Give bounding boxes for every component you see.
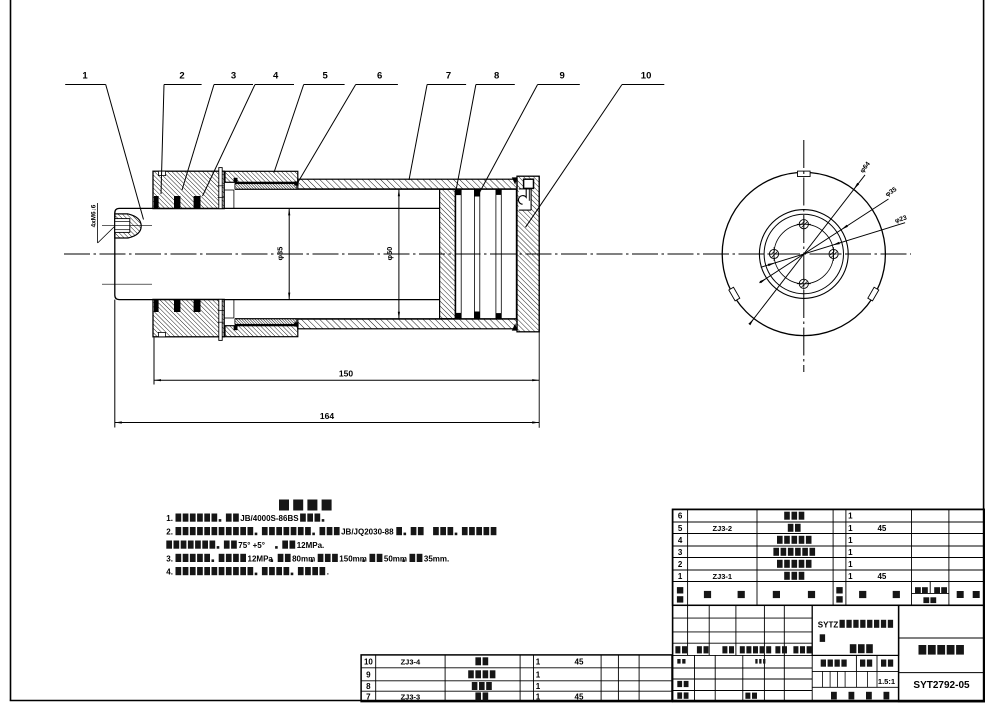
svg-text:1: 1 [848, 512, 853, 521]
svg-text:1: 1 [848, 548, 853, 557]
svg-text:9: 9 [560, 71, 565, 82]
svg-text:5: 5 [322, 71, 328, 82]
svg-text:1: 1 [848, 536, 853, 545]
svg-text:ZJ3-2: ZJ3-2 [713, 524, 733, 533]
svg-text:8: 8 [494, 71, 499, 82]
svg-text:10: 10 [364, 657, 373, 666]
svg-text:80mm: 80mm [292, 554, 315, 563]
svg-text:1: 1 [848, 572, 853, 581]
svg-text:.: . [327, 568, 329, 577]
svg-text:35mm.: 35mm. [424, 554, 449, 563]
svg-text:3: 3 [678, 548, 683, 557]
svg-text:3: 3 [231, 71, 236, 82]
svg-text:75° +5°: 75° +5° [238, 541, 265, 550]
svg-text:1: 1 [678, 572, 683, 581]
svg-text:50mm: 50mm [384, 554, 407, 563]
svg-text:SYTZ: SYTZ [818, 620, 839, 629]
svg-text:1: 1 [848, 560, 853, 569]
svg-text:45: 45 [877, 524, 886, 533]
svg-text:1.: 1. [166, 514, 173, 523]
svg-text:3.: 3. [166, 554, 173, 563]
svg-text:ZJ3-3: ZJ3-3 [401, 692, 421, 701]
svg-text:5: 5 [678, 524, 683, 533]
svg-text:1: 1 [536, 657, 541, 666]
svg-text:12MPa: 12MPa [248, 554, 274, 563]
svg-text:6: 6 [377, 71, 382, 82]
svg-text:2: 2 [678, 560, 683, 569]
svg-text:45: 45 [575, 657, 584, 666]
svg-text:4: 4 [273, 71, 279, 82]
svg-text:2: 2 [179, 71, 184, 82]
svg-text:ZJ3-1: ZJ3-1 [713, 572, 733, 581]
svg-text:JB/4000S-86BS: JB/4000S-86BS [240, 514, 299, 523]
svg-text:4: 4 [678, 536, 683, 545]
svg-text:4.: 4. [166, 568, 173, 577]
svg-text:2.: 2. [166, 528, 173, 537]
svg-text:10: 10 [641, 71, 652, 82]
svg-text:1: 1 [536, 670, 541, 679]
svg-text:6: 6 [678, 512, 683, 521]
svg-text:150mm: 150mm [339, 554, 367, 563]
svg-text:1: 1 [536, 692, 541, 701]
svg-text:45: 45 [877, 572, 886, 581]
svg-text:7: 7 [446, 71, 451, 82]
svg-text:12MPa.: 12MPa. [297, 541, 325, 550]
svg-text:150: 150 [339, 369, 353, 379]
svg-text:9: 9 [366, 670, 371, 679]
svg-text:SYT2792-05: SYT2792-05 [913, 680, 970, 691]
svg-text:JB/JQ2030-88: JB/JQ2030-88 [341, 528, 394, 537]
svg-text:1: 1 [848, 524, 853, 533]
svg-text:ZJ3-4: ZJ3-4 [401, 657, 421, 666]
svg-text:45: 45 [575, 692, 584, 701]
svg-text:1: 1 [82, 71, 88, 82]
svg-text:1.5:1: 1.5:1 [878, 677, 896, 686]
svg-text:1: 1 [536, 682, 541, 691]
svg-text:4xM6↓6: 4xM6↓6 [91, 204, 98, 227]
svg-text:8: 8 [366, 682, 371, 691]
svg-text:164: 164 [320, 411, 334, 421]
svg-text:7: 7 [366, 692, 371, 701]
